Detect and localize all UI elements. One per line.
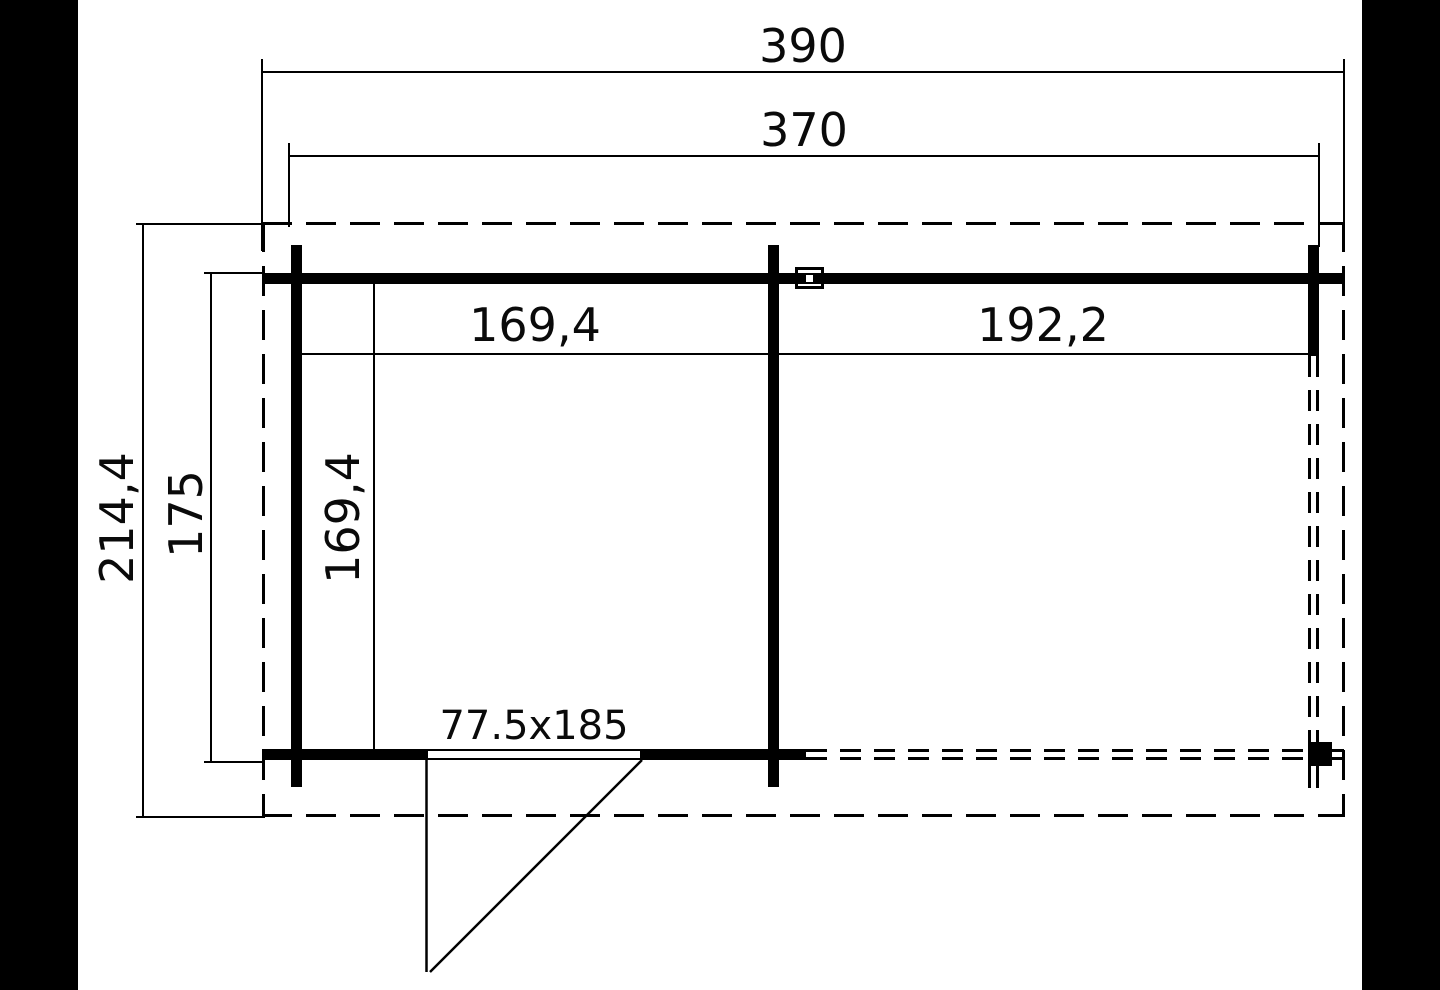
wall-bottom-left-of-door bbox=[262, 749, 426, 760]
dim-ext-overall-width-right bbox=[1343, 59, 1345, 231]
dim-line-room-widths bbox=[302, 353, 1308, 355]
dim-label-left-room-width: 169,4 bbox=[469, 302, 601, 348]
dim-ext-inner-depth-top bbox=[204, 272, 264, 274]
post-foot-left-line bbox=[1308, 766, 1311, 788]
post-foot-right-line bbox=[1316, 766, 1319, 788]
open-wall-right-outer-line bbox=[1308, 356, 1311, 745]
dim-label-overall-depth: 214,4 bbox=[94, 452, 140, 584]
dim-ext-inner-width-left bbox=[288, 143, 290, 227]
dim-line-left-room-depth bbox=[373, 284, 375, 750]
dim-ext-inner-depth-bottom bbox=[204, 761, 264, 763]
terrace-corner-post bbox=[1308, 742, 1332, 766]
letterbox-right bbox=[1362, 0, 1440, 990]
wall-right-upper-stub bbox=[1308, 245, 1319, 356]
wall-middle-partition bbox=[768, 245, 779, 787]
dim-label-door-size: 77.5x185 bbox=[439, 706, 628, 746]
terrace-edge-lower-line bbox=[806, 757, 1308, 760]
post-tie-lower bbox=[1332, 757, 1344, 760]
dim-label-overall-width: 390 bbox=[759, 23, 847, 69]
post-tie-upper bbox=[1332, 749, 1344, 752]
dim-ext-inner-width-right bbox=[1318, 143, 1320, 247]
dim-ext-overall-depth-top bbox=[136, 223, 263, 225]
letterbox-left bbox=[0, 0, 78, 990]
dim-label-right-section-width: 192,2 bbox=[977, 302, 1109, 348]
floor-plan-canvas: 390 370 169,4 192,2 169,4 214,4 175 77.5… bbox=[0, 0, 1440, 990]
overhang-outline-right bbox=[1342, 222, 1345, 817]
wall-connector-gap bbox=[806, 275, 813, 282]
open-wall-right-inner-line bbox=[1316, 356, 1319, 745]
door-swing bbox=[420, 758, 650, 976]
wall-left bbox=[291, 245, 302, 787]
dim-label-left-room-depth: 169,4 bbox=[320, 452, 366, 584]
overhang-outline-left bbox=[262, 222, 265, 817]
dim-ext-overall-depth-bottom bbox=[136, 816, 265, 818]
terrace-edge-upper-line bbox=[806, 749, 1308, 752]
dim-label-inner-depth: 175 bbox=[163, 470, 209, 558]
overhang-outline-top bbox=[262, 222, 1345, 225]
wall-bottom-right-of-door bbox=[642, 749, 806, 760]
wall-connector-symbol bbox=[795, 267, 824, 289]
dim-label-inner-width: 370 bbox=[760, 107, 848, 153]
